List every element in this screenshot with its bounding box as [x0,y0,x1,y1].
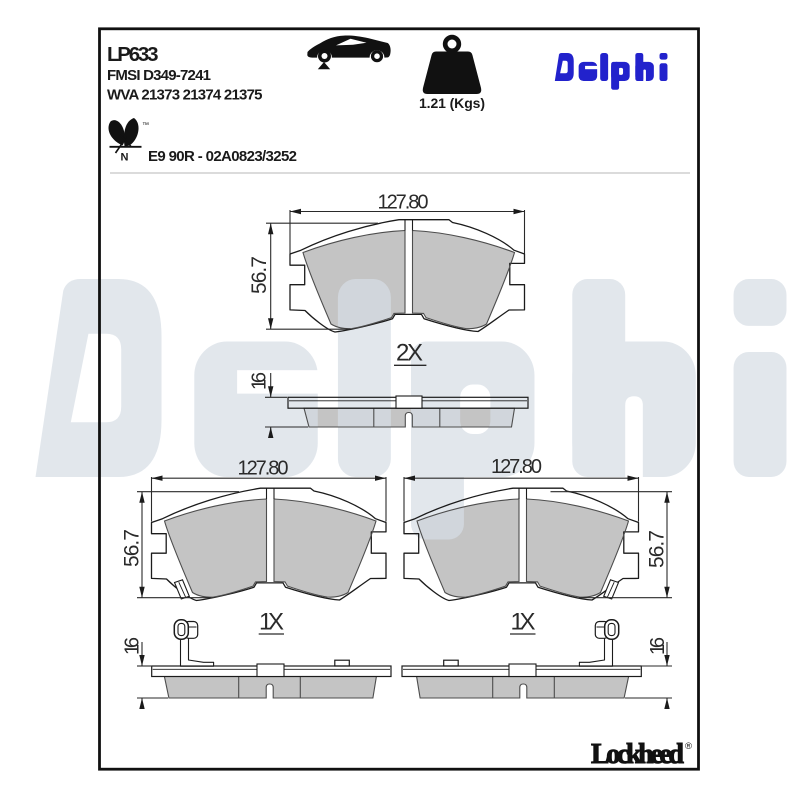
svg-text:LP633: LP633 [107,43,159,66]
svg-text:56.7: 56.7 [248,256,271,294]
svg-text:N: N [121,152,129,164]
svg-text:56.7: 56.7 [646,530,669,568]
svg-text:127.80: 127.80 [378,192,429,214]
svg-text:WVA 21373 21374 21375: WVA 21373 21374 21375 [107,86,263,103]
svg-text:127.80: 127.80 [238,458,289,480]
svg-text:16: 16 [647,637,669,655]
svg-text:®: ® [685,741,692,752]
svg-text:Lockheed: Lockheed [591,739,684,770]
svg-text:16: 16 [249,372,271,390]
svg-text:16: 16 [122,637,144,655]
svg-text:FMSI D349-7241: FMSI D349-7241 [107,67,211,84]
svg-text:1X: 1X [259,609,284,636]
svg-text:2X: 2X [396,340,423,367]
svg-text:1.21 (Kgs): 1.21 (Kgs) [419,95,485,111]
svg-text:™: ™ [142,122,149,129]
svg-text:127.80: 127.80 [491,456,542,478]
svg-text:E9 90R - 02A0823/3252: E9 90R - 02A0823/3252 [148,148,297,165]
svg-text:1X: 1X [511,609,536,636]
svg-text:56.7: 56.7 [121,529,144,567]
